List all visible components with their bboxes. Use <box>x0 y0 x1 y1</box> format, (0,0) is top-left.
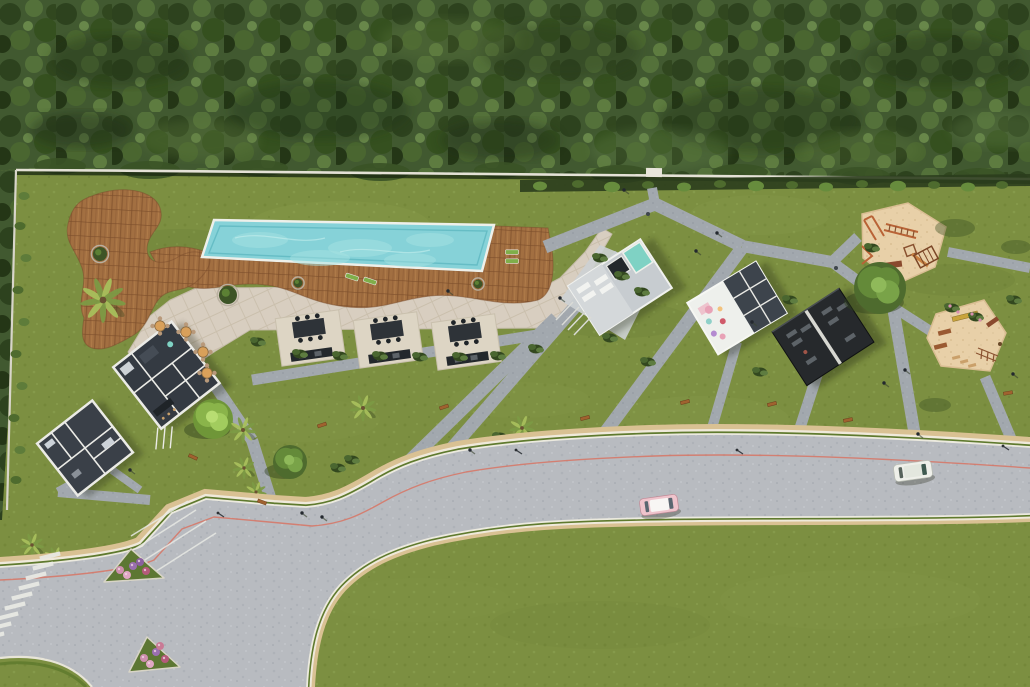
shrub <box>300 352 308 357</box>
garden-gate <box>646 168 662 177</box>
wall-shrub <box>748 181 764 191</box>
person-figure <box>622 188 625 191</box>
sun-lounger <box>506 259 519 264</box>
trash-bin <box>834 266 838 270</box>
table <box>198 347 208 357</box>
vine-shrub <box>9 414 20 422</box>
flowers <box>116 566 124 574</box>
shrub <box>790 298 798 303</box>
chair <box>193 350 197 354</box>
flowers <box>161 655 169 663</box>
palm-trunk <box>100 297 107 304</box>
flower-highlight <box>144 569 146 571</box>
person-figure <box>916 432 919 435</box>
shrub <box>372 351 380 357</box>
wall-shrub <box>677 182 691 191</box>
wall-shrub <box>533 181 547 190</box>
chair <box>158 316 162 320</box>
person-figure <box>694 249 697 252</box>
lamp-head <box>515 449 518 452</box>
site-plan-render <box>0 0 1030 687</box>
shrub <box>642 290 650 295</box>
shrub <box>332 351 340 357</box>
flowers <box>140 654 148 662</box>
chair <box>205 378 209 382</box>
shrub <box>292 349 300 355</box>
shrub <box>752 367 760 373</box>
shrub <box>864 243 872 249</box>
planter <box>472 278 484 290</box>
forest-patch <box>230 80 410 140</box>
lamp-head <box>736 449 739 452</box>
vine-shrub <box>17 382 28 390</box>
wall-shrub <box>604 182 620 192</box>
table <box>202 368 212 378</box>
vine-shrub <box>21 254 32 262</box>
shrub <box>1014 298 1022 303</box>
lawn-patch <box>720 570 980 630</box>
shrub <box>344 455 352 461</box>
flowers <box>129 562 137 570</box>
tree-highlight <box>871 277 887 293</box>
shrub <box>340 354 348 359</box>
planter-bush <box>475 281 479 285</box>
trash-bin <box>646 212 650 216</box>
shrub <box>622 274 630 279</box>
forest-patch <box>50 34 190 86</box>
tree-shadow <box>1001 240 1030 254</box>
table <box>155 321 165 331</box>
shrub <box>610 336 618 341</box>
shrub <box>250 337 258 343</box>
wall-shrub <box>714 180 726 188</box>
sun-lounger <box>506 250 519 255</box>
flower-shrub <box>948 304 951 307</box>
water-sparkle <box>406 233 454 247</box>
shrub <box>760 370 768 375</box>
shrub <box>602 333 610 339</box>
flowers <box>156 642 164 650</box>
flower-highlight <box>125 573 127 575</box>
planter <box>91 245 108 262</box>
palm-trunk <box>30 543 34 547</box>
planter-bush <box>295 280 299 284</box>
flower-highlight <box>154 650 156 652</box>
person-figure <box>715 231 718 234</box>
shrub <box>782 295 790 301</box>
person-figure <box>300 511 303 514</box>
chair <box>205 363 209 367</box>
chair <box>212 371 216 375</box>
shrub <box>460 355 468 360</box>
chair <box>197 371 201 375</box>
palm-trunk <box>520 426 524 430</box>
shrub <box>490 351 498 357</box>
flower-shrub <box>956 310 959 313</box>
wall-shrub <box>856 180 868 188</box>
shrub <box>420 355 428 360</box>
chair <box>184 322 188 326</box>
lawn-patch <box>330 578 510 622</box>
shrub <box>412 352 420 358</box>
person-figure <box>468 448 471 451</box>
lamp-head <box>1002 445 1005 448</box>
chair <box>191 330 195 334</box>
planter <box>217 284 238 305</box>
shrub <box>592 253 600 259</box>
shrub <box>528 344 536 350</box>
wall-shrub <box>786 181 798 189</box>
flowers <box>123 571 131 579</box>
planter-bush <box>95 249 101 255</box>
person-figure <box>128 468 131 471</box>
chair <box>201 357 205 361</box>
person-figure <box>882 381 885 384</box>
shrub <box>498 354 506 359</box>
wall-shrub <box>890 181 906 191</box>
vine-shrub <box>19 318 30 326</box>
chair <box>201 342 205 346</box>
shrub <box>640 357 648 363</box>
palm-trunk <box>361 406 365 410</box>
chair <box>165 324 169 328</box>
bbq-cabanas <box>275 310 501 370</box>
forest-patch <box>30 112 130 148</box>
tree-shadow <box>919 398 951 412</box>
chair <box>158 331 162 335</box>
water-sparkle <box>290 250 350 266</box>
shrub <box>338 466 346 471</box>
person-figure <box>558 296 561 299</box>
shrub <box>380 354 388 359</box>
forest-patch <box>380 18 520 62</box>
lamp-head <box>217 512 220 515</box>
flower-highlight <box>163 657 165 659</box>
shrub <box>648 360 656 365</box>
tree-highlight <box>206 411 218 423</box>
shrub <box>536 347 544 352</box>
flower-highlight <box>142 656 144 658</box>
chair <box>176 330 180 334</box>
flower-highlight <box>138 560 140 562</box>
forest-patch <box>590 128 730 172</box>
shrub <box>258 340 266 345</box>
vine-shrub <box>11 476 22 484</box>
bbq-grill <box>392 353 400 359</box>
palm-trunk <box>242 466 245 469</box>
vine-shrub <box>13 286 24 294</box>
flowers <box>136 558 144 566</box>
shrub <box>872 246 880 251</box>
shrub <box>1006 295 1014 301</box>
chair <box>150 324 154 328</box>
aerial-masterplan <box>0 0 1030 687</box>
bbq-cabana <box>353 312 423 368</box>
person-figure <box>446 289 449 292</box>
flower-shrub <box>978 318 981 321</box>
vine-shrub <box>15 446 26 454</box>
shrub <box>330 463 338 469</box>
water-sparkle <box>384 253 436 267</box>
forest-patch <box>140 120 260 160</box>
shrub <box>352 458 360 463</box>
bbq-cabana <box>431 314 501 370</box>
shrub <box>634 287 642 293</box>
person-figure <box>750 320 753 323</box>
forest-patch <box>800 130 920 170</box>
lawn-patch <box>490 601 710 649</box>
vine-shrub <box>19 192 30 200</box>
wall-shrub <box>819 182 833 191</box>
palm-trunk <box>241 428 245 432</box>
flower-shrub <box>970 312 973 315</box>
chair <box>184 337 188 341</box>
vine-shrub <box>15 222 26 230</box>
tree-shadow <box>935 219 975 237</box>
wall-shrub <box>996 181 1008 189</box>
forest-patch <box>440 120 560 160</box>
flower-highlight <box>148 662 150 664</box>
planter-bush <box>222 289 230 297</box>
wall-shrub <box>928 181 940 189</box>
shrub <box>614 271 622 277</box>
bbq-grill <box>470 355 478 361</box>
flowers <box>142 567 150 575</box>
chair <box>208 350 212 354</box>
bbq-grill <box>314 351 322 357</box>
flower-highlight <box>131 564 133 566</box>
table <box>181 327 191 337</box>
wall-shrub <box>961 182 975 191</box>
car-roof <box>903 464 922 478</box>
wall-shrub <box>642 181 654 189</box>
gym-post <box>998 342 1002 346</box>
wall-shrub <box>572 180 584 188</box>
shrub <box>600 256 608 261</box>
person-figure <box>903 368 906 371</box>
forest-patch <box>860 34 1020 86</box>
shrub <box>452 352 460 358</box>
planter <box>292 277 304 289</box>
person-figure <box>1011 372 1014 375</box>
tree-highlight <box>284 455 294 465</box>
person-figure <box>320 515 323 518</box>
flowers <box>146 660 154 668</box>
water-sparkle <box>232 232 288 248</box>
flower-highlight <box>158 644 160 646</box>
palm-trunk <box>254 490 257 493</box>
flower-highlight <box>118 568 120 570</box>
vine-shrub <box>11 350 22 358</box>
